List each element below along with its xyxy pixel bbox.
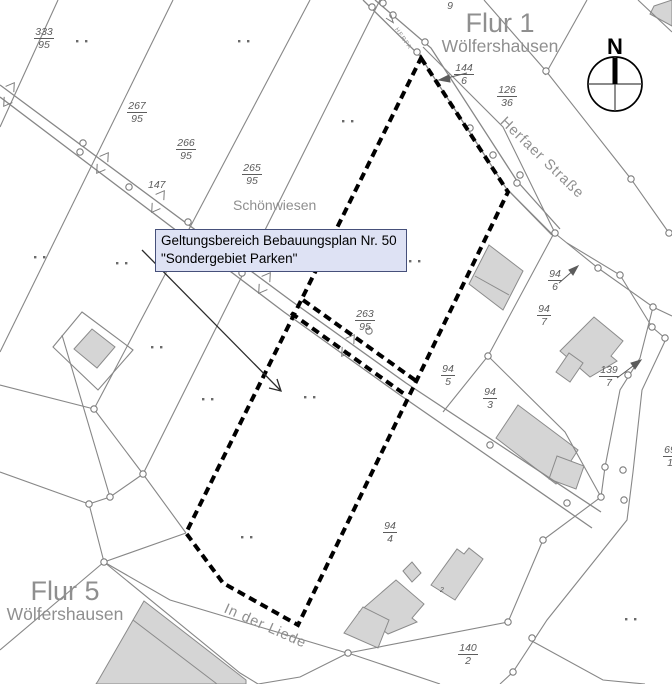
annotation-line-1: Geltungsbereich Bebauungsplan Nr. 50 bbox=[161, 232, 401, 250]
north-label: N bbox=[607, 34, 623, 59]
building-footprints bbox=[74, 0, 672, 684]
annotation-line-2: "Sondergebiet Parken" bbox=[161, 250, 401, 268]
map-canvas: N bbox=[0, 0, 672, 684]
cadastral-map: N 33395267952669526595144612636119263959… bbox=[0, 0, 672, 684]
north-arrow-icon: N bbox=[588, 34, 642, 111]
plan-annotation-box: Geltungsbereich Bebauungsplan Nr. 50 "So… bbox=[155, 229, 407, 272]
vegetation-dots bbox=[34, 40, 636, 620]
